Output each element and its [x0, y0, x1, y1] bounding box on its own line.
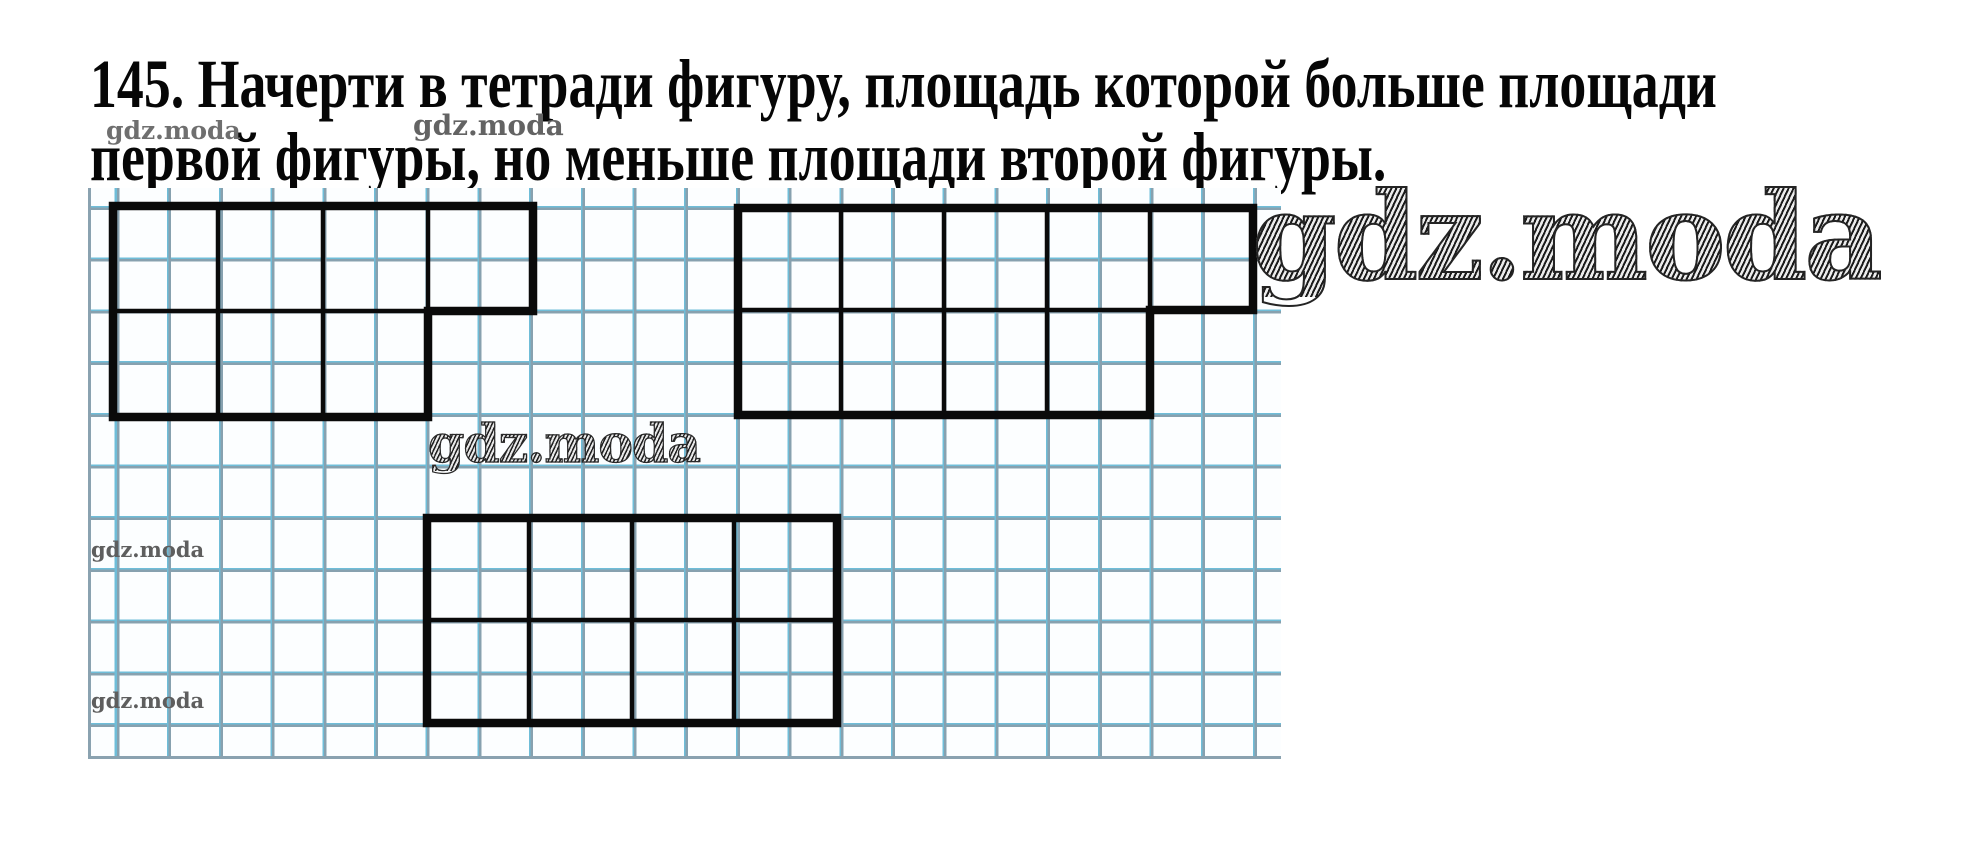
watermark-top-left: gdz.moda	[106, 118, 241, 143]
watermark-left-lower: gdz.moda	[91, 690, 204, 711]
watermark-middle: gdz.moda	[428, 419, 700, 471]
watermark-large-right: gdz.moda	[1252, 176, 1880, 297]
textbook-scan-page: 145. Начерти в тетради фигуру, площадь к…	[0, 0, 1972, 865]
watermark-left-upper: gdz.moda	[91, 539, 204, 560]
figures-layer	[0, 0, 1972, 865]
watermark-top-middle: gdz.moda	[413, 112, 564, 140]
